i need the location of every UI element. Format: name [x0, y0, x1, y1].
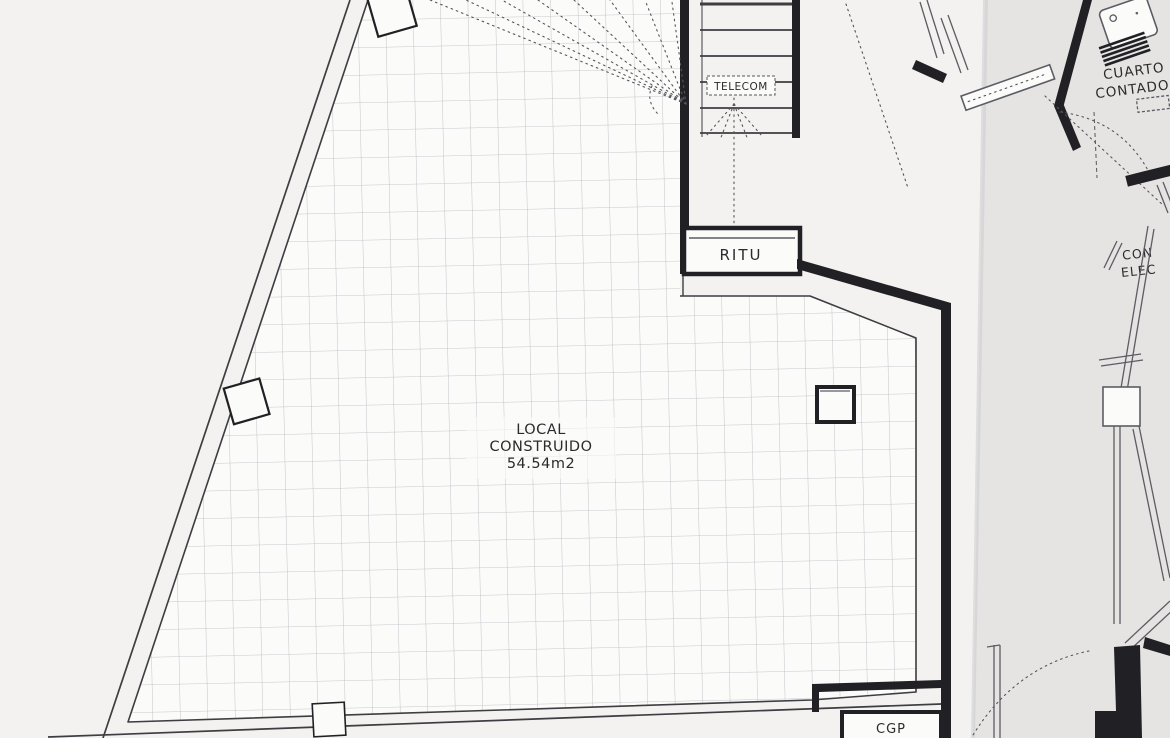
local-area-text: 54.54m2 [507, 456, 575, 472]
telecom-text: TELECOM [713, 81, 768, 93]
ritu-room: RITU [684, 228, 800, 274]
local-text-line2: CONSTRUIDO [490, 439, 593, 455]
cgp-text: CGP [876, 722, 906, 737]
ritu-text: RITU [720, 246, 763, 264]
telecom-label: TELECOM [707, 76, 775, 95]
bottom-pier [312, 702, 346, 737]
column-square [817, 387, 854, 422]
local-text-line1: LOCAL [516, 422, 566, 438]
annex-pier [1103, 387, 1140, 426]
floor-plan: TELECOM RITU LOCAL [0, 0, 1170, 738]
local-label-group: LOCAL CONSTRUIDO 54.54m2 [466, 417, 616, 479]
cgp-enclosure: CGP [842, 712, 941, 738]
paper-fold-shade [973, 0, 1170, 738]
